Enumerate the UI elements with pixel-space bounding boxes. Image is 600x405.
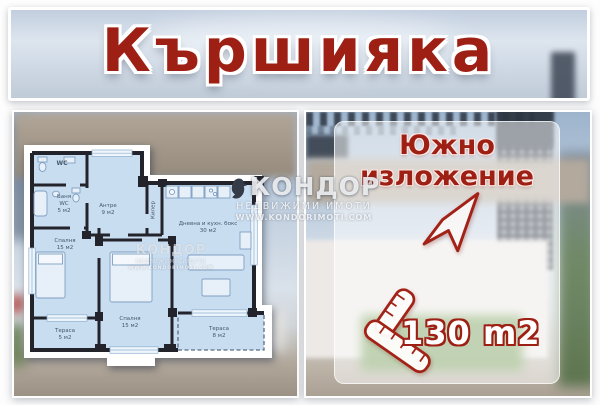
condor-bird-icon [228, 177, 248, 200]
area-value: 130 m2 [401, 314, 541, 352]
exposure-line-1: Южно [335, 130, 559, 161]
room-label-bedroom-1: Спалня [54, 238, 75, 244]
room-label-bedroom-2: Спалня [119, 316, 140, 322]
watermark-brand: КОНДОР [250, 174, 380, 200]
svg-text:15 м2: 15 м2 [122, 323, 138, 329]
room-label-wc: WC [56, 160, 68, 167]
room-label-living: Дневна и кухн. бокс [179, 221, 238, 227]
svg-text:5 м2: 5 м2 [59, 335, 72, 341]
watermark-tagline: НЕДВИЖИМИ ИМОТИ [233, 201, 375, 212]
room-label-terrace-2: Тераса [208, 326, 229, 332]
svg-text:5 м2: 5 м2 [58, 208, 71, 214]
info-panel: Южно изложение 130 m2 [304, 110, 592, 398]
area-row: 130 m2 [343, 284, 555, 384]
title-banner: Кършияка [8, 7, 590, 101]
room-label-terrace-1: Тераса [54, 328, 75, 334]
arrow-northeast-icon [409, 184, 493, 278]
page-title: Кършияка [11, 16, 587, 86]
svg-text:WC: WC [59, 201, 68, 207]
room-label-entry: Антре [99, 203, 117, 209]
svg-text:9 м2: 9 м2 [102, 210, 115, 216]
watermark-website: WWW.KONDORIMOTI.COM [233, 213, 375, 222]
watermark-plan: КОНДОР НЕДВИЖИМИ ИМОТИ WWW.KONDORIMOTI.C… [116, 244, 226, 271]
watermark-main: КОНДОР НЕДВИЖИМИ ИМОТИ WWW.KONDORIMOTI.C… [233, 174, 375, 222]
watermark-plan-brand: КОНДОР [116, 244, 226, 258]
svg-text:30 м2: 30 м2 [200, 228, 216, 234]
svg-text:15 м2: 15 м2 [57, 245, 73, 251]
svg-text:8 м2: 8 м2 [213, 333, 226, 339]
room-label-bath: Баня [57, 194, 71, 200]
info-card: Южно изложение 130 m2 [334, 121, 560, 384]
watermark-plan-website: WWW.KONDORIMOTI.COM [116, 266, 226, 271]
room-label-closet: Килер [151, 201, 157, 219]
watermark-plan-tagline: НЕДВИЖИМИ ИМОТИ [116, 259, 226, 265]
